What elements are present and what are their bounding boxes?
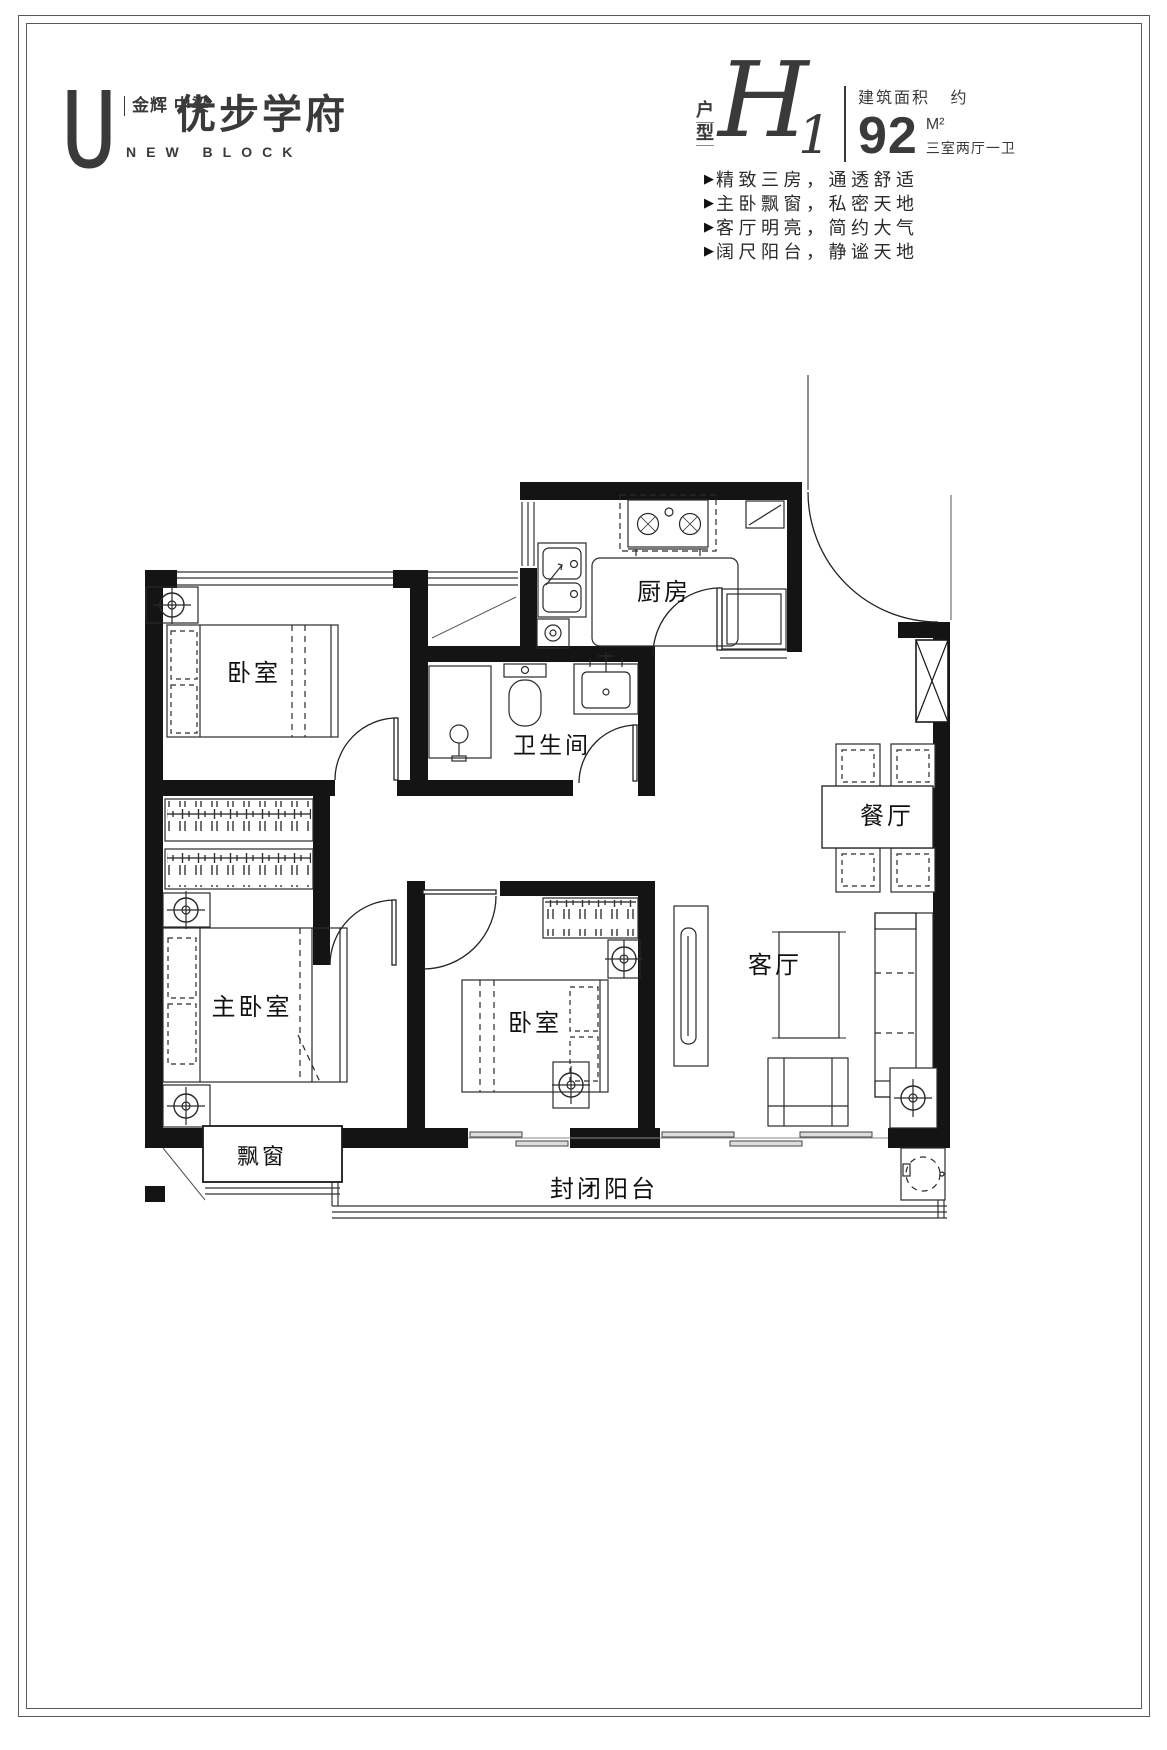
label-bedroom1: 卧室 bbox=[227, 660, 281, 687]
sliding-doors bbox=[468, 1132, 888, 1146]
label-bathroom: 卫生间 bbox=[513, 732, 591, 758]
label-master: 主卧室 bbox=[212, 994, 293, 1021]
floorplan: 厨房 卫生间 餐厅 客厅 卧室 卧室 主卧室 飘窗 封闭阳台 bbox=[0, 0, 1167, 1750]
washing-machine bbox=[901, 1148, 945, 1200]
label-bay-window: 飘窗 bbox=[237, 1144, 287, 1169]
label-bedroom2: 卧室 bbox=[508, 1010, 562, 1037]
bedroom2-furniture bbox=[462, 898, 643, 1108]
coffee-table bbox=[779, 932, 839, 1038]
shower bbox=[429, 666, 491, 758]
bedroom2-door-arc bbox=[423, 896, 496, 969]
entry-door-arc bbox=[808, 492, 938, 622]
label-kitchen: 厨房 bbox=[637, 579, 691, 606]
label-balcony: 封闭阳台 bbox=[550, 1176, 658, 1203]
stove bbox=[628, 500, 708, 547]
bedroom1-door-arc bbox=[335, 718, 397, 780]
tv-stand bbox=[674, 906, 708, 1066]
kitchen-sink bbox=[538, 543, 586, 617]
living-furniture bbox=[674, 906, 937, 1128]
label-living: 客厅 bbox=[748, 952, 802, 979]
kitchen-fixtures bbox=[537, 495, 786, 649]
fridge bbox=[722, 589, 786, 649]
shaft bbox=[916, 640, 948, 722]
armchair bbox=[768, 1058, 848, 1126]
label-dining: 餐厅 bbox=[860, 803, 914, 830]
kitchen-appliance bbox=[537, 619, 569, 648]
